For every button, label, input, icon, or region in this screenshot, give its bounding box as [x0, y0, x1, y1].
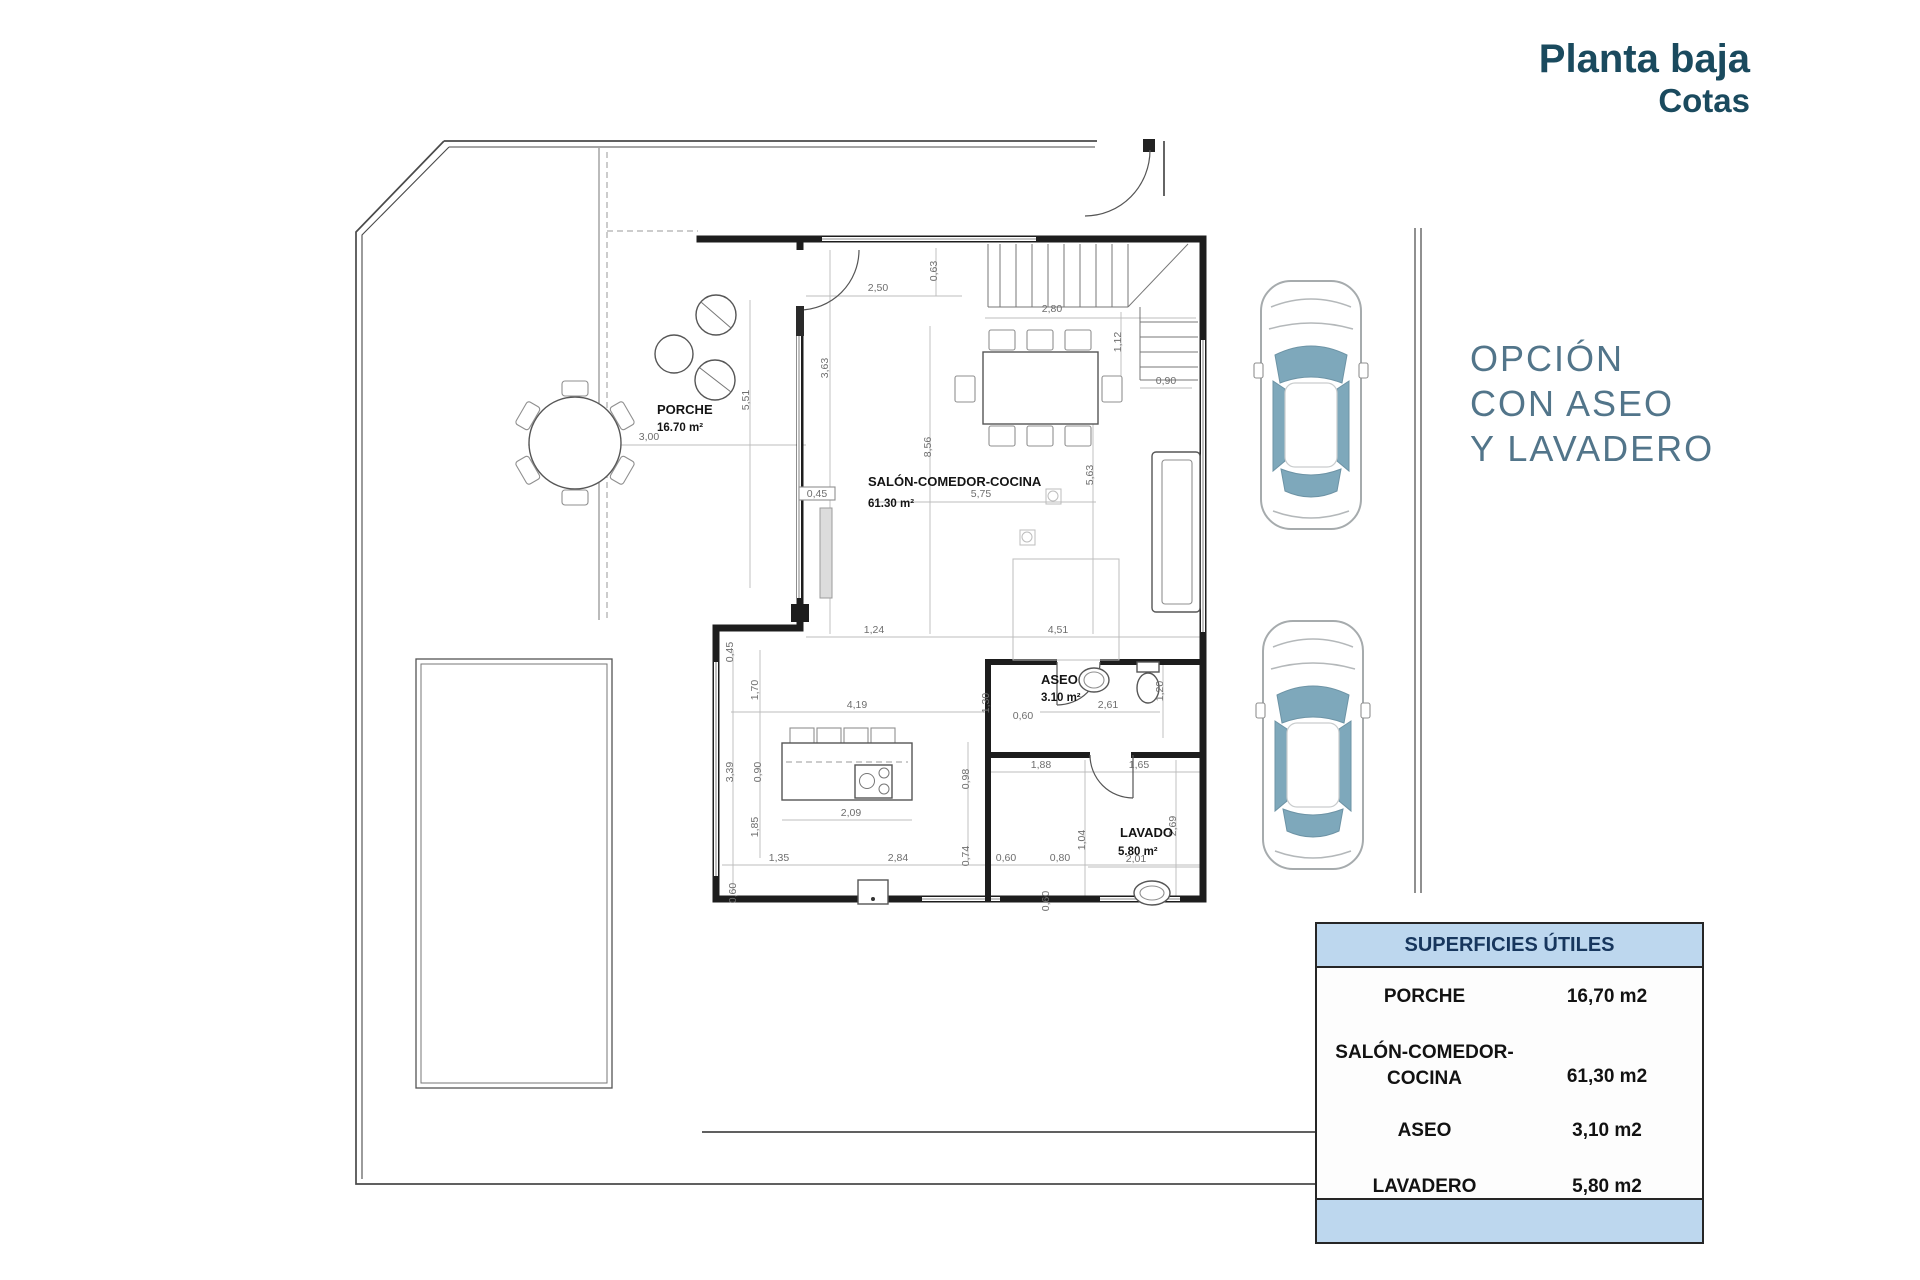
gate-swing-arc [1085, 150, 1150, 216]
aseo-fixtures [1079, 662, 1159, 703]
dimension-label: 0,63 [928, 261, 940, 282]
pool [416, 659, 612, 1088]
surfaces-table: SUPERFICIES ÚTILES PORCHE 16,70 m2 SALÓN… [1315, 922, 1704, 1244]
house-walls [700, 239, 1203, 899]
dining-table [983, 352, 1098, 424]
page: 2,500,632,801,120,905,513,003,638,565,75… [0, 0, 1920, 1280]
dimension-label: 0,80 [1050, 852, 1071, 864]
surfaces-table-header: SUPERFICIES ÚTILES [1317, 924, 1702, 968]
round-table [529, 397, 621, 489]
porch-furniture [515, 295, 736, 505]
dimension-label: 1,24 [864, 624, 885, 636]
dimension-label: 1,70 [749, 680, 761, 701]
wall-pillar [791, 604, 809, 622]
dimension-label: 0,74 [960, 846, 972, 867]
dimension-label: 3,63 [819, 358, 831, 379]
room-label-lavado: LAVADO [1120, 825, 1173, 840]
dimension-label: 0,60 [1013, 710, 1034, 722]
room-area-porche: 16.70 m² [657, 422, 703, 434]
dimension-label: 4,51 [1048, 624, 1069, 636]
table-row-value: 61,30 m2 [1532, 1066, 1682, 1088]
dimension-label: 2,80 [1042, 303, 1063, 315]
dimension-label: 1,04 [1076, 830, 1088, 851]
dimension-label: 1,35 [769, 852, 790, 864]
page-title: Planta baja [1539, 36, 1750, 82]
option-note: OPCIÓN CON ASEO Y LAVADERO [1470, 336, 1714, 471]
room-label-porche: PORCHE [657, 402, 713, 417]
car-top [1254, 281, 1368, 529]
dimension-label: 2,61 [1098, 699, 1119, 711]
dimension-label: 1,65 [1129, 759, 1150, 771]
dimension-label: 1,30 [980, 693, 992, 714]
porch-door [799, 250, 859, 310]
lavadero-fixtures [1134, 881, 1170, 905]
dimension-label: 5,75 [971, 488, 992, 500]
option-note-line: Y LAVADERO [1470, 426, 1714, 471]
page-subtitle: Cotas [1539, 82, 1750, 120]
dimension-label: 0,90 [752, 762, 764, 783]
dimension-label: 2,50 [868, 282, 889, 294]
toilet-tank [1137, 662, 1159, 672]
table-row-name: ASEO [1317, 1120, 1532, 1142]
rug [1013, 559, 1119, 660]
dimension-label: 0,60 [996, 852, 1017, 864]
dimension-label: 8,56 [922, 437, 934, 458]
porch-area [599, 148, 698, 622]
dimension-label: 5,63 [1084, 465, 1096, 486]
dimension-label: 2,84 [888, 852, 909, 864]
road-edge-lines [1415, 228, 1421, 893]
dimension-label: 0,98 [960, 769, 972, 790]
room-area-salon: 61.30 m² [868, 498, 914, 510]
porch-side-table [655, 335, 693, 373]
table-row-value: 3,10 m2 [1532, 1120, 1682, 1142]
table-row-name: PORCHE [1317, 986, 1532, 1008]
room-area-lavado: 5.80 m² [1118, 846, 1158, 858]
dimension-label: 4,19 [847, 699, 868, 711]
dimension-label: 1,88 [1031, 759, 1052, 771]
dimension-label: 5,51 [740, 390, 752, 411]
room-area-aseo: 3.10 m² [1041, 692, 1081, 704]
table-row-name: SALÓN-COMEDOR- COCINA [1317, 1040, 1532, 1092]
dimension-label: 0,45 [807, 488, 828, 500]
room-label-salon: SALÓN-COMEDOR-COCINA [868, 474, 1042, 489]
dimension-label: 0,45 [724, 642, 736, 663]
gate-post [1143, 139, 1155, 152]
car-bottom [1256, 621, 1370, 869]
lavadero-door [1090, 755, 1133, 798]
radiator [820, 508, 832, 598]
dimension-label: 0,90 [1156, 375, 1177, 387]
dimension-label: 2,09 [841, 807, 862, 819]
table-row-value: 16,70 m2 [1532, 986, 1682, 1008]
dimension-label: 3,39 [724, 762, 736, 783]
dimension-label: 0,60 [1040, 891, 1052, 912]
room-label-aseo: ASEO [1041, 672, 1078, 687]
dimension-label: 1,85 [749, 817, 761, 838]
porch-door-leaf [796, 306, 804, 336]
surfaces-table-footer [1317, 1198, 1702, 1242]
dimension-label: 0,60 [727, 883, 739, 904]
dimension-label: 1,12 [1112, 332, 1124, 353]
table-row-name: LAVADERO [1317, 1176, 1532, 1198]
option-note-line: CON ASEO [1470, 381, 1714, 426]
dimension-label: 1,20 [1154, 681, 1166, 702]
title-block: Planta baja Cotas [1539, 36, 1750, 120]
option-note-line: OPCIÓN [1470, 336, 1714, 381]
table-row-value: 5,80 m2 [1532, 1176, 1682, 1198]
